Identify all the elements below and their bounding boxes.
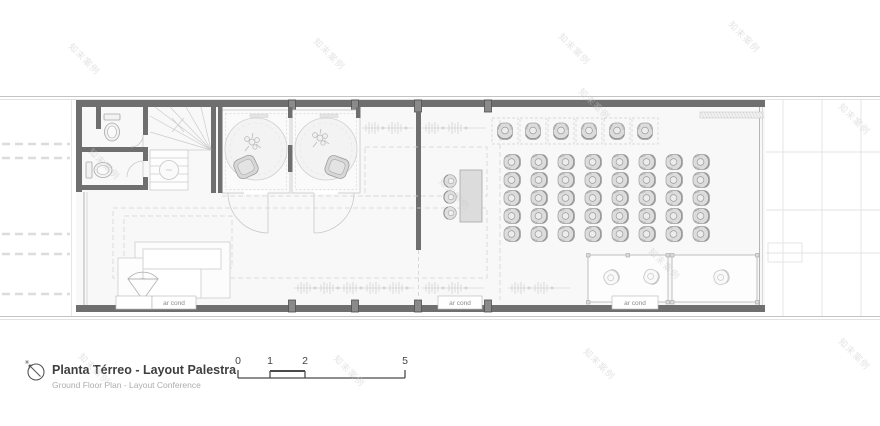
column [485, 100, 492, 112]
audience-chair-icon [558, 227, 575, 242]
toilet-icon [104, 114, 120, 141]
ac-unit-label: ar cond [624, 300, 646, 307]
audience-chair-icon [612, 155, 629, 170]
exterior-wall-left [76, 100, 82, 192]
audience-chair-icon [639, 227, 656, 242]
audience-chair-icon [585, 191, 602, 206]
deck-right [671, 254, 760, 305]
column [415, 100, 422, 112]
equipment-tag [250, 114, 268, 118]
audience-chair-icon [585, 155, 602, 170]
audience-chair-icon [585, 209, 602, 224]
audience-chair-icon [612, 209, 629, 224]
equipment-tag [320, 114, 338, 118]
scale-bar-labels: 0 1 2 5 [235, 355, 408, 367]
column [485, 300, 492, 312]
audience-chair-icon [666, 155, 683, 170]
floor-plan-sheet: ar cond ar cond ar cond 0 1 2 5 Planta T… [0, 0, 880, 426]
interior-wall [416, 112, 421, 250]
audience-chair-icon [666, 191, 683, 206]
toilet-icon [86, 162, 112, 178]
workstation-chair-icon [498, 123, 513, 140]
workstation-chair-icon [638, 123, 653, 140]
column [415, 300, 422, 312]
scale-tick-label: 2 [302, 355, 308, 367]
audience-chair-icon [531, 209, 548, 224]
workstation-chair-icon [554, 123, 569, 140]
plan-title: Planta Térreo - Layout Palestra [52, 363, 236, 377]
north-arrow-icon [24, 358, 48, 384]
audience-chair-icon [585, 227, 602, 242]
audience-chair-icon [504, 191, 521, 206]
ac-unit-label: ar cond [449, 300, 471, 307]
audience-chair-icon [558, 191, 575, 206]
workstation-chair-icon [582, 123, 597, 140]
speaker-table [444, 170, 482, 222]
hatch-vent [700, 112, 764, 118]
column [289, 300, 296, 312]
column [352, 300, 359, 312]
stage-area [118, 242, 230, 298]
audience-chair-icon [558, 173, 575, 188]
audience-chair-icon [504, 227, 521, 242]
scale-tick-label: 5 [402, 355, 408, 367]
neighbor-context-right [766, 100, 880, 316]
audience-chair-icon [558, 155, 575, 170]
audience-chair-icon [666, 227, 683, 242]
audience-chair-icon [666, 209, 683, 224]
scale-tick-label: 1 [267, 355, 273, 367]
audience-chair-icon [504, 209, 521, 224]
audience-chair-icon [693, 227, 710, 242]
audience-chair-icon [639, 155, 656, 170]
audience-chair-icon [612, 173, 629, 188]
workstation-chair-icon [610, 123, 625, 140]
audience-chair-icon [531, 227, 548, 242]
audience-chair-icon [558, 209, 575, 224]
audience-chair-icon [504, 155, 521, 170]
audience-chair-icon [639, 191, 656, 206]
audience-chair-icon [666, 173, 683, 188]
audience-chair-icon [693, 209, 710, 224]
audience-chair-icon [693, 155, 710, 170]
audience-chair-icon [693, 191, 710, 206]
audience-chair-icon [531, 191, 548, 206]
audience-chair-icon [531, 173, 548, 188]
plan-subtitle: Ground Floor Plan - Layout Conference [52, 380, 201, 390]
audience-chair-icon [612, 227, 629, 242]
audience-chair-icon [639, 173, 656, 188]
neighbor-context-left [2, 144, 70, 294]
scale-bar [238, 370, 405, 378]
ac-unit-label: ar cond [163, 300, 185, 307]
audience-chair-icon [504, 173, 521, 188]
title-block: Planta Térreo - Layout Palestra Ground F… [24, 358, 48, 389]
audience-chair-icon [612, 191, 629, 206]
audience-chair-icon [585, 173, 602, 188]
audience-chair-icon [639, 209, 656, 224]
workstation-chair-icon [526, 123, 541, 140]
audience-chair-icon [693, 173, 710, 188]
audience-chair-icon [531, 155, 548, 170]
